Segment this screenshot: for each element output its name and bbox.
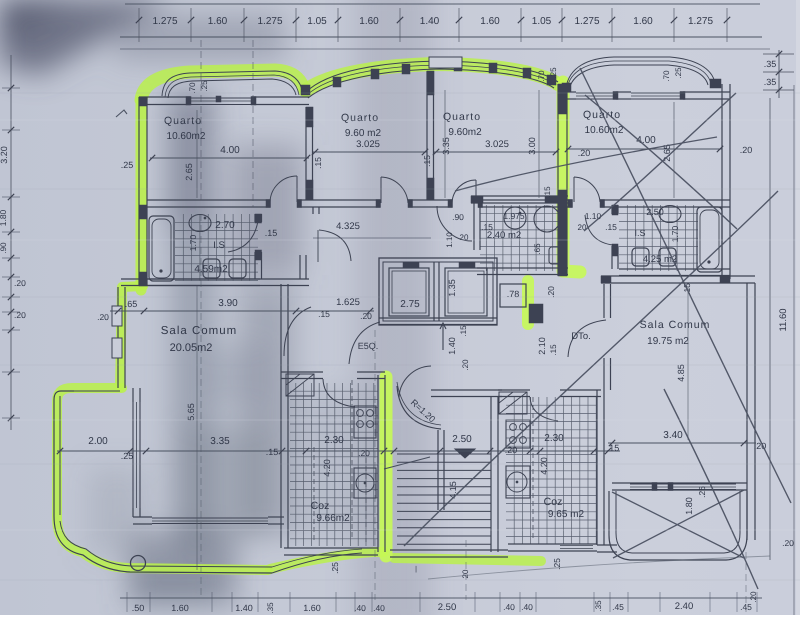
svg-text:2.65: 2.65 xyxy=(184,163,194,181)
svg-text:.35: .35 xyxy=(764,77,777,87)
svg-text:.40: .40 xyxy=(373,603,385,613)
svg-text:1.10: 1.10 xyxy=(585,211,602,221)
svg-text:Coz: Coz xyxy=(311,500,330,512)
svg-text:19.75 m2: 19.75 m2 xyxy=(647,336,689,347)
svg-text:1.60: 1.60 xyxy=(208,16,228,27)
svg-text:.15: .15 xyxy=(605,222,617,232)
svg-text:.45: .45 xyxy=(612,602,624,612)
svg-text:9.60m2: 9.60m2 xyxy=(448,127,482,138)
svg-text:20: 20 xyxy=(578,223,587,232)
svg-text:1.60: 1.60 xyxy=(303,603,321,613)
svg-text:.20: .20 xyxy=(749,591,758,603)
svg-text:1.05: 1.05 xyxy=(307,16,327,27)
svg-text:2.75: 2.75 xyxy=(400,299,420,310)
svg-text:E5Q.: E5Q. xyxy=(358,341,379,351)
svg-text:.15: .15 xyxy=(313,157,323,169)
svg-text:.15: .15 xyxy=(543,186,552,198)
svg-text:3.025: 3.025 xyxy=(356,139,380,150)
svg-text:20.05m2: 20.05m2 xyxy=(170,342,213,354)
svg-text:Coz: Coz xyxy=(544,496,563,508)
svg-text:1.625: 1.625 xyxy=(336,297,360,308)
svg-text:20: 20 xyxy=(460,233,469,242)
svg-text:9.60 m2: 9.60 m2 xyxy=(345,128,382,139)
svg-text:I.S: I.S xyxy=(213,240,225,251)
svg-text:.70: .70 xyxy=(537,70,546,82)
svg-text:3.35: 3.35 xyxy=(441,137,451,155)
svg-text:1.40: 1.40 xyxy=(447,337,457,355)
svg-text:.15: .15 xyxy=(266,447,279,457)
svg-text:11.60: 11.60 xyxy=(778,308,789,331)
svg-text:.20: .20 xyxy=(546,286,556,298)
svg-text:1.80: 1.80 xyxy=(684,497,694,515)
svg-text:3.40: 3.40 xyxy=(663,430,683,441)
svg-text:4.25 m2: 4.25 m2 xyxy=(643,254,677,265)
svg-text:4.59m2: 4.59m2 xyxy=(194,264,228,275)
svg-text:I.S: I.S xyxy=(634,228,645,238)
svg-text:1.40: 1.40 xyxy=(235,603,253,613)
svg-text:.20: .20 xyxy=(578,148,591,158)
svg-text:.20: .20 xyxy=(97,312,109,322)
svg-text:.78: .78 xyxy=(507,289,520,299)
svg-text:3.20: 3.20 xyxy=(0,146,9,164)
svg-text:.35: .35 xyxy=(266,602,275,614)
svg-text:4.85: 4.85 xyxy=(676,364,686,382)
svg-text:4.00: 4.00 xyxy=(220,145,240,156)
svg-text:.25: .25 xyxy=(549,67,558,79)
svg-text:Quarto: Quarto xyxy=(164,115,202,127)
svg-text:.35: .35 xyxy=(764,59,777,69)
svg-text:1.35: 1.35 xyxy=(447,279,457,297)
svg-text:.90: .90 xyxy=(452,212,464,222)
svg-text:.20: .20 xyxy=(740,145,753,155)
svg-text:1.05: 1.05 xyxy=(532,16,552,27)
svg-text:.20: .20 xyxy=(14,278,26,288)
svg-text:.15: .15 xyxy=(607,443,620,453)
svg-text:2.40: 2.40 xyxy=(675,601,694,612)
svg-text:.65: .65 xyxy=(125,299,138,309)
svg-text:.15: .15 xyxy=(265,228,278,238)
svg-text:.15: .15 xyxy=(318,309,330,319)
svg-text:1.275: 1.275 xyxy=(688,16,713,27)
svg-text:Quarto: Quarto xyxy=(341,112,379,124)
svg-text:2.50: 2.50 xyxy=(452,434,472,445)
svg-text:.35: .35 xyxy=(594,600,603,612)
svg-text:.25: .25 xyxy=(697,486,707,498)
svg-text:1.275: 1.275 xyxy=(152,16,177,27)
svg-text:DTo.: DTo. xyxy=(571,331,591,342)
svg-text:1.70: 1.70 xyxy=(188,234,198,251)
svg-text:Sala Comum: Sala Comum xyxy=(161,325,237,337)
svg-text:4.20: 4.20 xyxy=(322,459,332,477)
svg-text:|: | xyxy=(415,565,417,573)
svg-text:Quarto: Quarto xyxy=(443,111,481,123)
svg-text:4.20: 4.20 xyxy=(539,457,549,475)
svg-text:5.65: 5.65 xyxy=(186,403,196,421)
svg-text:10.60m2: 10.60m2 xyxy=(167,131,206,142)
svg-text:4.15: 4.15 xyxy=(448,481,458,499)
svg-text:Sala Comum: Sala Comum xyxy=(640,319,711,331)
svg-text:2.30: 2.30 xyxy=(544,433,564,444)
svg-text:1.60: 1.60 xyxy=(359,16,379,27)
svg-text:10.60m2: 10.60m2 xyxy=(585,125,624,136)
svg-text:1.40: 1.40 xyxy=(420,16,440,27)
svg-text:20: 20 xyxy=(461,569,470,578)
svg-text:1.60: 1.60 xyxy=(633,16,653,27)
svg-text:2.10: 2.10 xyxy=(537,337,547,355)
svg-text:3.00: 3.00 xyxy=(527,137,537,155)
svg-text:2.00: 2.00 xyxy=(88,436,108,447)
svg-text:.20: .20 xyxy=(360,311,372,321)
svg-text:2.70: 2.70 xyxy=(215,220,235,231)
svg-text:2.50: 2.50 xyxy=(438,602,457,613)
svg-text:3.90: 3.90 xyxy=(218,298,238,309)
svg-text:.40: .40 xyxy=(503,602,515,612)
svg-text:1.80: 1.80 xyxy=(0,209,8,226)
svg-text:.70: .70 xyxy=(188,82,197,94)
svg-text:2.40 m2: 2.40 m2 xyxy=(487,230,521,241)
svg-text:9.65 m2: 9.65 m2 xyxy=(548,509,585,520)
svg-text:.90: .90 xyxy=(0,242,8,254)
svg-text:4.325: 4.325 xyxy=(336,221,360,232)
svg-text:.25: .25 xyxy=(200,80,209,92)
svg-text:.15: .15 xyxy=(422,155,432,167)
svg-text:3.35: 3.35 xyxy=(210,436,230,447)
svg-text:1.60: 1.60 xyxy=(171,603,189,613)
svg-text:1.275: 1.275 xyxy=(574,16,599,27)
svg-text:1.975: 1.975 xyxy=(503,211,525,221)
svg-text:Quarto: Quarto xyxy=(583,109,621,121)
svg-text:.25: .25 xyxy=(121,451,134,461)
svg-text:.70: .70 xyxy=(662,70,671,82)
svg-text:.40: .40 xyxy=(521,602,533,612)
svg-text:3.025: 3.025 xyxy=(485,139,509,150)
svg-text:.40: .40 xyxy=(354,603,366,613)
svg-text:2.30: 2.30 xyxy=(324,435,344,446)
svg-text:9.66m2: 9.66m2 xyxy=(316,513,350,524)
svg-text:.25: .25 xyxy=(330,562,340,574)
svg-text:.20: .20 xyxy=(358,448,370,458)
svg-text:.50: .50 xyxy=(132,603,145,613)
svg-text:.25: .25 xyxy=(674,67,683,79)
svg-text:.15: .15 xyxy=(549,344,558,356)
svg-text:1.275: 1.275 xyxy=(257,16,282,27)
svg-text:.25: .25 xyxy=(121,160,134,170)
svg-text:.20: .20 xyxy=(14,310,26,320)
svg-text:1.60: 1.60 xyxy=(480,16,500,27)
svg-text:.65: .65 xyxy=(533,243,542,255)
svg-text:.20: .20 xyxy=(782,538,794,548)
svg-text:.15: .15 xyxy=(459,325,468,337)
